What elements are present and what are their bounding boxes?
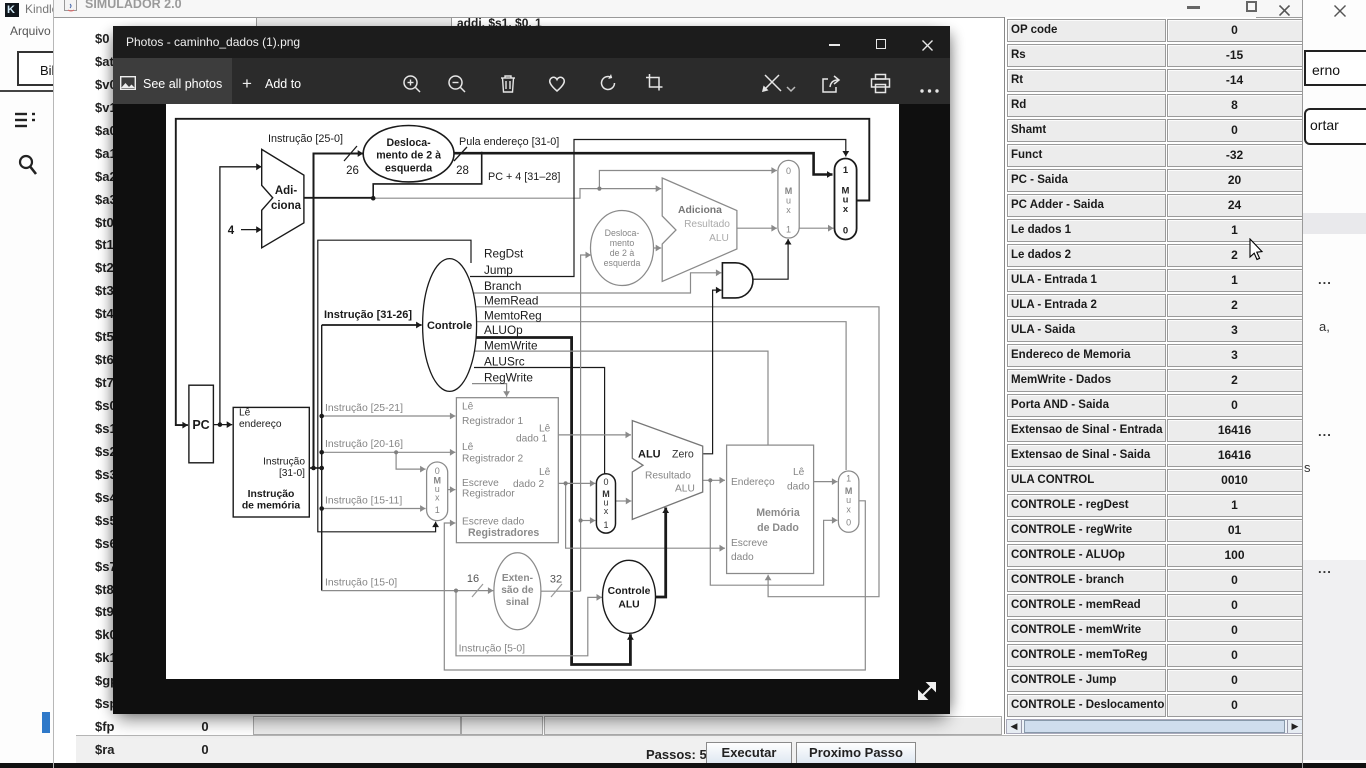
- svg-text:Registrador: Registrador: [462, 489, 515, 500]
- svg-text:x: x: [846, 505, 851, 515]
- svg-text:PC: PC: [192, 418, 209, 432]
- svg-text:Lê: Lê: [539, 467, 551, 478]
- svg-text:são de: são de: [501, 585, 534, 596]
- svg-text:1: 1: [843, 165, 849, 176]
- svg-text:Resultado: Resultado: [684, 219, 730, 230]
- svg-text:1: 1: [846, 474, 851, 484]
- svg-text:ALU: ALU: [709, 233, 729, 244]
- svg-text:0: 0: [843, 226, 848, 237]
- svg-text:Instrução [31-26]: Instrução [31-26]: [324, 309, 412, 321]
- svg-text:16: 16: [467, 573, 479, 585]
- svg-text:Endereço: Endereço: [731, 477, 775, 488]
- svg-text:32: 32: [550, 574, 562, 586]
- svg-text:[31-0]: [31-0]: [279, 468, 305, 479]
- svg-text:de Dado: de Dado: [757, 522, 799, 534]
- svg-text:Pula endereço [31-0]: Pula endereço [31-0]: [459, 136, 559, 148]
- svg-text:Memória: Memória: [756, 507, 800, 519]
- svg-text:x: x: [435, 493, 440, 503]
- svg-text:x: x: [786, 205, 791, 215]
- svg-text:Exten-: Exten-: [502, 573, 533, 584]
- svg-text:Escreve: Escreve: [731, 538, 768, 549]
- svg-text:Instrução [25-0]: Instrução [25-0]: [268, 133, 343, 145]
- svg-text:esquerda: esquerda: [385, 163, 432, 175]
- svg-text:ALU: ALU: [638, 449, 661, 461]
- svg-text:x: x: [843, 204, 849, 215]
- svg-text:1: 1: [786, 225, 791, 235]
- svg-text:MemRead: MemRead: [484, 294, 538, 308]
- svg-text:Controle: Controle: [427, 320, 472, 332]
- svg-text:u: u: [846, 495, 851, 505]
- svg-text:ALUOp: ALUOp: [484, 323, 523, 337]
- svg-text:4: 4: [228, 225, 235, 237]
- svg-text:0: 0: [435, 466, 440, 476]
- svg-text:Instrução: Instrução: [248, 489, 295, 500]
- svg-text:de memória: de memória: [242, 501, 301, 512]
- svg-text:dado 1: dado 1: [516, 434, 547, 445]
- svg-text:Instrução [15-11]: Instrução [15-11]: [325, 496, 402, 507]
- svg-text:Controle: Controle: [608, 586, 651, 597]
- svg-text:Instrução: Instrução: [263, 457, 305, 468]
- svg-text:dado 2: dado 2: [513, 479, 544, 490]
- svg-text:Lê: Lê: [462, 442, 474, 453]
- svg-text:dado: dado: [787, 482, 810, 493]
- svg-text:de 2 à: de 2 à: [610, 248, 635, 258]
- svg-text:Desloca-: Desloca-: [387, 137, 432, 149]
- svg-text:Instrução [20-16]: Instrução [20-16]: [325, 439, 403, 450]
- svg-text:0: 0: [603, 477, 608, 487]
- svg-text:dado: dado: [731, 552, 754, 563]
- svg-text:Zero: Zero: [672, 449, 694, 461]
- svg-text:mento de 2 à: mento de 2 à: [376, 150, 441, 162]
- svg-text:ALU: ALU: [618, 600, 639, 611]
- svg-text:ALU: ALU: [675, 484, 695, 495]
- svg-text:sinal: sinal: [506, 597, 529, 608]
- svg-text:Instrução [25-21]: Instrução [25-21]: [325, 403, 403, 414]
- svg-text:0: 0: [846, 518, 851, 528]
- svg-text:Adi-: Adi-: [275, 185, 298, 197]
- svg-text:endereço: endereço: [239, 419, 282, 430]
- svg-text:MemWrite: MemWrite: [484, 339, 538, 353]
- svg-text:Desloca-: Desloca-: [605, 228, 640, 238]
- svg-text:Instrução [5-0]: Instrução [5-0]: [459, 644, 526, 655]
- svg-text:ciona: ciona: [271, 200, 302, 212]
- svg-text:Registrador 2: Registrador 2: [462, 454, 523, 465]
- svg-text:Escreve dado: Escreve dado: [462, 517, 525, 528]
- svg-text:26: 26: [346, 165, 359, 177]
- svg-text:mento: mento: [610, 238, 635, 248]
- svg-text:Branch: Branch: [484, 279, 521, 293]
- svg-text:x: x: [604, 506, 609, 516]
- svg-text:Registrador 1: Registrador 1: [462, 416, 523, 427]
- svg-text:RegDst: RegDst: [484, 247, 524, 261]
- svg-text:1: 1: [603, 520, 608, 530]
- svg-text:Lê: Lê: [462, 402, 474, 413]
- svg-text:Resultado: Resultado: [645, 471, 691, 482]
- svg-text:Lê: Lê: [239, 408, 251, 419]
- svg-text:RegWrite: RegWrite: [484, 371, 533, 385]
- svg-text:u: u: [786, 196, 791, 206]
- svg-text:M: M: [785, 186, 793, 196]
- svg-text:1: 1: [435, 505, 440, 515]
- svg-text:esquerda: esquerda: [604, 258, 641, 268]
- svg-text:Adiciona: Adiciona: [678, 205, 722, 216]
- svg-text:Registradores: Registradores: [468, 527, 539, 539]
- svg-text:PC + 4 [31–28]: PC + 4 [31–28]: [488, 171, 560, 183]
- svg-text:MemtoReg: MemtoReg: [484, 309, 542, 323]
- svg-text:0: 0: [786, 166, 791, 176]
- svg-text:Jump: Jump: [484, 263, 513, 277]
- svg-text:Instrução [15-0]: Instrução [15-0]: [325, 578, 397, 589]
- svg-text:ALUSrc: ALUSrc: [484, 355, 525, 369]
- svg-text:Escreve: Escreve: [462, 478, 499, 489]
- svg-text:28: 28: [456, 165, 469, 177]
- svg-text:Lê: Lê: [793, 467, 805, 478]
